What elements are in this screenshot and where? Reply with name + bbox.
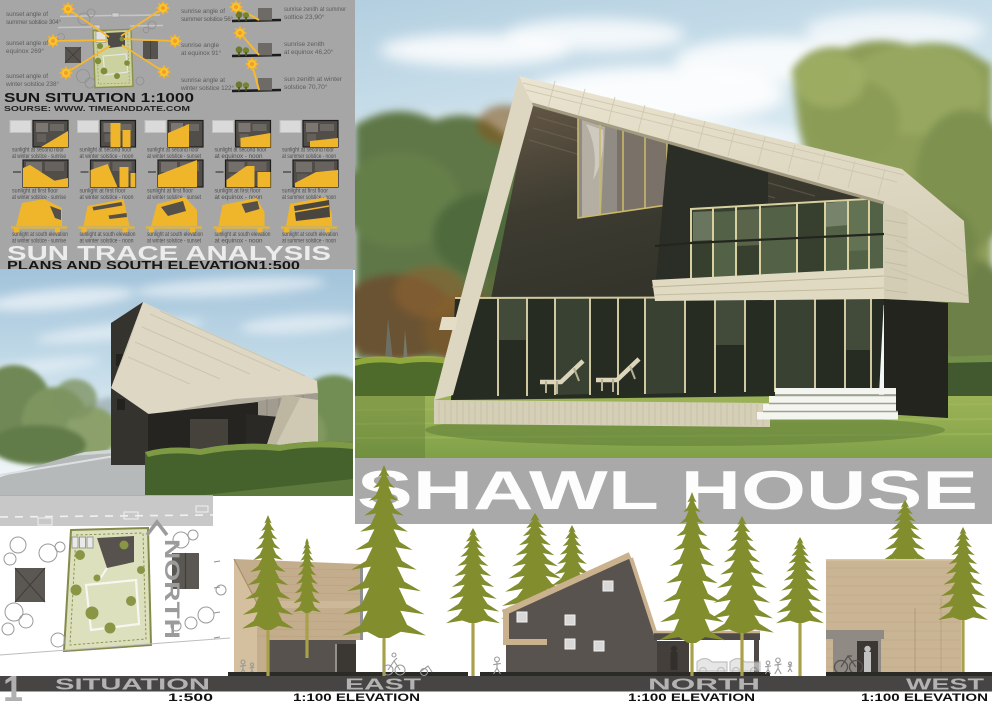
svg-text:equinox 269°: equinox 269° bbox=[6, 47, 44, 55]
svg-text:at summer solstice - noon: at summer solstice - noon bbox=[282, 153, 336, 160]
svg-text:sun zenith at winter: sun zenith at winter bbox=[284, 76, 343, 83]
svg-text:at winter solstice - noon: at winter solstice - noon bbox=[80, 194, 134, 201]
svg-text:at summer solstice - noon: at summer solstice - noon bbox=[282, 194, 336, 201]
svg-text:SITUATION: SITUATION bbox=[55, 677, 210, 694]
svg-text:solstice 70,70°: solstice 70,70° bbox=[284, 83, 328, 91]
svg-text:sunrise angle of: sunrise angle of bbox=[181, 8, 225, 15]
svg-text:sunrise angle: sunrise angle bbox=[181, 42, 219, 49]
svg-text:summer solstice 56°: summer solstice 56° bbox=[181, 15, 233, 23]
svg-text:NORTH: NORTH bbox=[160, 539, 183, 639]
svg-text:SOURSE: WWW. TIMEANDDATE.COM: SOURSE: WWW. TIMEANDDATE.COM bbox=[4, 104, 190, 113]
svg-text:1:100 ELEVATION: 1:100 ELEVATION bbox=[861, 692, 988, 702]
svg-text:at equinox - noon: at equinox - noon bbox=[215, 153, 264, 160]
svg-text:at winter solstice - sunrise: at winter solstice - sunrise bbox=[12, 153, 66, 160]
svg-text:1:500: 1:500 bbox=[168, 692, 213, 702]
svg-text:sunset angle of: sunset angle of bbox=[6, 40, 48, 47]
svg-text:at winter solstice - sunset: at winter solstice - sunset bbox=[147, 153, 201, 160]
svg-text:soltice 23,90°: soltice 23,90° bbox=[284, 13, 325, 21]
svg-text:at equinox 91°: at equinox 91° bbox=[181, 49, 221, 57]
svg-text:SUN SITUATION 1:1000: SUN SITUATION 1:1000 bbox=[4, 91, 194, 105]
svg-text:1:100 ELEVATION: 1:100 ELEVATION bbox=[293, 692, 420, 702]
svg-text:sunset angle of: sunset angle of bbox=[6, 11, 48, 18]
svg-text:sunrise angle at: sunrise angle at bbox=[181, 77, 225, 84]
svg-text:at winter solstice - noon: at winter solstice - noon bbox=[80, 153, 134, 160]
svg-text:summer solstice 304°: summer solstice 304° bbox=[6, 18, 61, 26]
svg-text:WEST: WEST bbox=[906, 677, 984, 694]
svg-text:EAST: EAST bbox=[345, 677, 421, 694]
svg-text:winter solstice 238°: winter solstice 238° bbox=[5, 80, 59, 88]
svg-text:sunrise zenith at summer: sunrise zenith at summer bbox=[284, 6, 347, 13]
svg-text:sunrise zenith: sunrise zenith bbox=[284, 41, 325, 48]
svg-text:1:100 ELEVATION: 1:100 ELEVATION bbox=[628, 692, 755, 702]
svg-text:sunset angle of: sunset angle of bbox=[6, 73, 48, 80]
svg-text:1: 1 bbox=[3, 668, 23, 702]
svg-text:at equinox 46,20°: at equinox 46,20° bbox=[284, 48, 334, 56]
svg-text:NORTH: NORTH bbox=[648, 677, 760, 694]
